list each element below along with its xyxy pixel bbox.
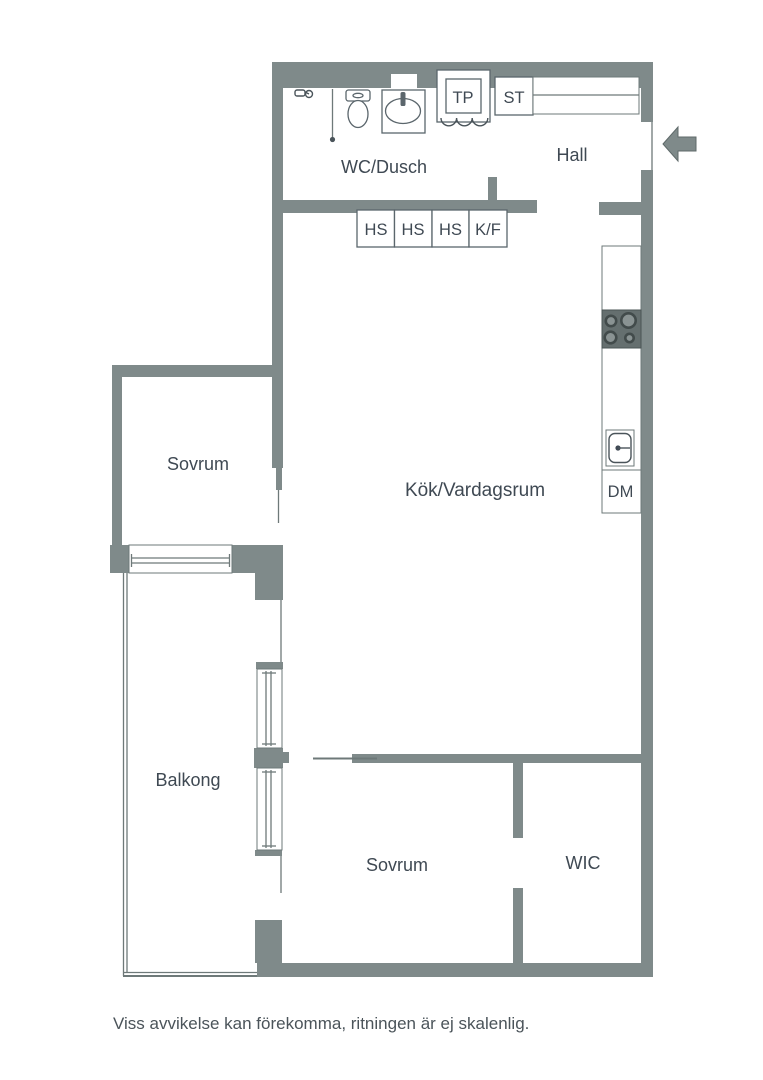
label-tall-cabinet-2: HS bbox=[402, 221, 425, 239]
room-label-wc-shower: WC/Dusch bbox=[341, 157, 427, 177]
wall-balcony-sill-2 bbox=[255, 850, 282, 856]
label-drying-cabinet: TP bbox=[452, 89, 473, 107]
bedroom-left-window bbox=[129, 545, 232, 573]
sink-tap-icon bbox=[401, 92, 406, 106]
shower-rail-end bbox=[330, 137, 335, 142]
wall-bedroom-left-right bbox=[272, 377, 283, 468]
label-tall-cabinet-1: HS bbox=[365, 221, 388, 239]
balcony-window-1 bbox=[257, 669, 282, 748]
floor-plan-drawing: WC/Dusch Hall Kök/Vardagsrum Sovrum Balk… bbox=[0, 0, 763, 1080]
wall-balcony-mid-block bbox=[254, 748, 283, 768]
room-label-bedroom-lower: Sovrum bbox=[366, 855, 428, 875]
wall-bottom bbox=[257, 963, 653, 977]
room-label-kitchen-living: Kök/Vardagsrum bbox=[405, 480, 545, 501]
room-label-balcony: Balkong bbox=[155, 770, 220, 790]
wall-wic-divider-lower bbox=[513, 888, 523, 963]
bathroom-sink-icon bbox=[382, 90, 425, 133]
wall-niche-above-sink bbox=[391, 74, 417, 89]
room-labels: WC/Dusch Hall Kök/Vardagsrum Sovrum Balk… bbox=[155, 145, 600, 875]
walls bbox=[110, 62, 653, 977]
kitchen-sink-icon bbox=[606, 430, 634, 466]
wall-balcony-mid-nub bbox=[283, 752, 289, 763]
room-label-hall: Hall bbox=[556, 145, 587, 165]
label-cleaning-cabinet: ST bbox=[503, 89, 524, 107]
label-fridge-freezer: K/F bbox=[475, 221, 501, 239]
wall-bedroom-left-left bbox=[112, 365, 122, 573]
label-tall-cabinet-3: HS bbox=[439, 221, 462, 239]
toilet-icon bbox=[346, 90, 370, 128]
room-label-wic: WIC bbox=[566, 853, 601, 873]
wall-bedroom-left-bottom-b bbox=[232, 545, 283, 573]
fixture-labels: TP ST HS HS HS K/F DM bbox=[365, 89, 634, 501]
wall-wic-divider-upper bbox=[513, 763, 523, 838]
balcony-window-2 bbox=[257, 768, 282, 850]
entrance-arrow-icon bbox=[663, 127, 696, 161]
wall-bedroom-left-top bbox=[112, 365, 283, 377]
wall-wc-stub bbox=[488, 177, 497, 202]
kitchen-fixtures bbox=[602, 246, 641, 513]
wall-bedroom-lower-top bbox=[352, 754, 641, 763]
shower-head-icon bbox=[295, 90, 313, 98]
wall-hall-kitchen-stub bbox=[599, 202, 641, 215]
floor-plan-page: WC/Dusch Hall Kök/Vardagsrum Sovrum Balk… bbox=[0, 0, 763, 1080]
disclaimer-text: Viss avvikelse kan förekomma, ritningen … bbox=[113, 1014, 529, 1033]
hall-wardrobe bbox=[533, 77, 639, 114]
wall-balcony-corner-block bbox=[255, 573, 283, 600]
stove-icon bbox=[602, 310, 641, 348]
room-label-bedroom-left: Sovrum bbox=[167, 454, 229, 474]
wall-right-above-entry bbox=[641, 62, 653, 122]
wall-balcony-sill-1 bbox=[256, 662, 283, 669]
wall-left-upper bbox=[272, 62, 283, 377]
wall-bedroom-left-door-jamb bbox=[276, 468, 282, 490]
label-dishwasher: DM bbox=[608, 483, 634, 501]
wall-balcony-lower-block bbox=[255, 920, 282, 963]
wall-right-main bbox=[641, 170, 653, 977]
wall-bedroom-left-bottom-a bbox=[110, 545, 129, 573]
